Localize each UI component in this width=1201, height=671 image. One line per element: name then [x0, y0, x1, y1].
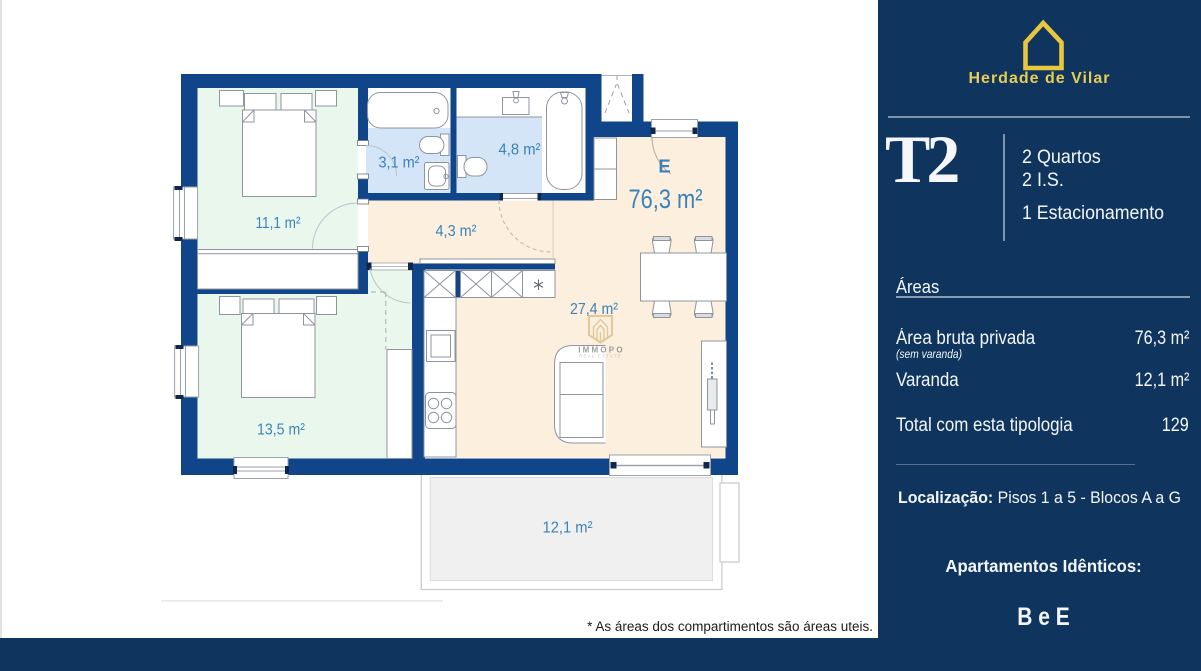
svg-text:3,1 m²: 3,1 m² — [379, 155, 421, 172]
svg-text:4,8 m²: 4,8 m² — [499, 142, 542, 159]
svg-text:E: E — [658, 156, 670, 177]
svg-text:11,1 m²: 11,1 m² — [256, 215, 302, 232]
svg-text:12,1 m²: 12,1 m² — [543, 520, 594, 537]
svg-text:REAL ESTATE: REAL ESTATE — [579, 354, 622, 359]
svg-text:4,3 m²: 4,3 m² — [436, 223, 478, 240]
svg-text:13,5 m²: 13,5 m² — [257, 422, 306, 439]
svg-text:76,3 m²: 76,3 m² — [629, 184, 703, 214]
svg-text:27,4 m²: 27,4 m² — [570, 301, 619, 318]
